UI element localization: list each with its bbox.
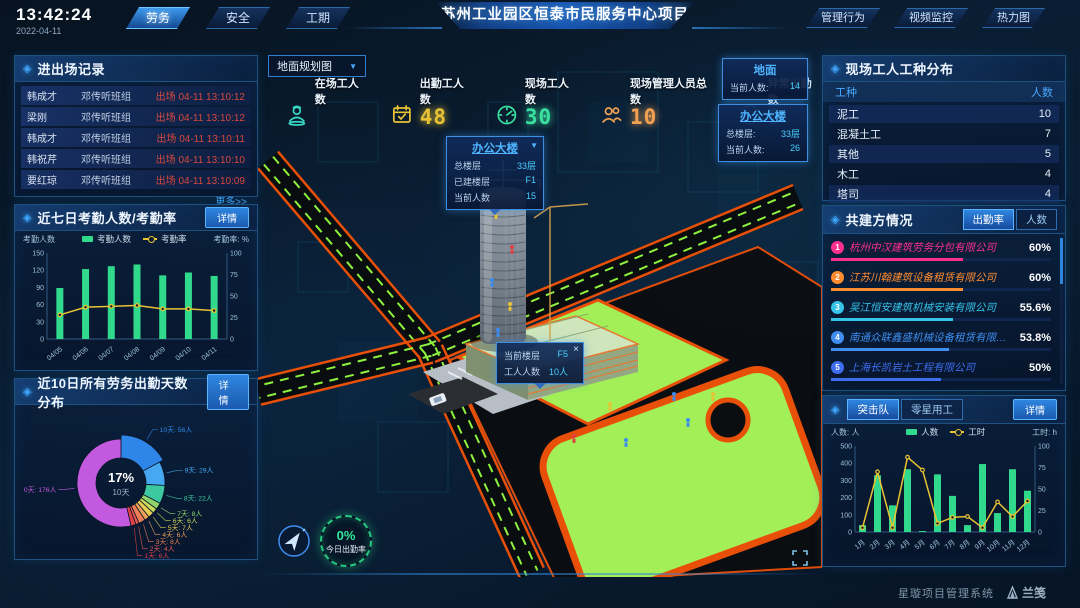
svg-text:400: 400: [840, 461, 852, 468]
svg-text:1天: 6人: 1天: 6人: [144, 552, 169, 559]
svg-text:1月: 1月: [853, 538, 867, 551]
partner-bar: [831, 258, 1051, 261]
svg-text:25: 25: [1038, 508, 1046, 515]
worker-name: 韩祝芹: [27, 151, 81, 166]
svg-text:100: 100: [230, 251, 242, 258]
svg-text:9天: 29人: 9天: 29人: [185, 467, 214, 475]
ground-panel-title: 地面: [730, 62, 800, 78]
legend-swatch: [950, 431, 964, 433]
svg-text:150: 150: [32, 251, 44, 258]
building-tooltip-rows: 总楼层33层已建楼层F1当前人数15: [454, 159, 536, 204]
svg-text:3月: 3月: [883, 538, 897, 551]
entry-exit-body: 韩成才邓传听班组出场 04-11 13:10:12梁刚邓传听班组出场 04-11…: [15, 82, 257, 189]
view-select-dropdown[interactable]: 地面规划图 ▼: [268, 55, 366, 77]
svg-text:17%: 17%: [108, 470, 134, 485]
attendance-panel: ◈ 近七日考勤人数/考勤率 详情 考勤人数 考勤人数考勤率 考勤率: % 030…: [14, 204, 258, 371]
fullscreen-icon[interactable]: [792, 550, 808, 566]
view-select-value: 地面规划图: [277, 58, 332, 74]
svg-text:4月: 4月: [898, 538, 912, 551]
partner-name: 杭州中汉建筑劳务分包有限公司: [849, 240, 1024, 255]
chevron-down-icon[interactable]: ▼: [530, 141, 538, 150]
nav-tab[interactable]: 视频监控: [894, 8, 968, 28]
worker-name: 韩成才: [27, 130, 81, 145]
svg-text:60: 60: [36, 302, 44, 309]
svg-text:200: 200: [840, 495, 852, 502]
svg-text:7天: 8人: 7天: 8人: [177, 510, 202, 518]
entry-exit-row: 韩祝芹邓传听班组出场 04-11 13:10:10: [21, 149, 251, 168]
svg-text:7月: 7月: [943, 538, 957, 551]
info-value: 26: [790, 143, 800, 156]
svg-text:90: 90: [36, 285, 44, 292]
legend-item: 人数: [906, 426, 938, 438]
current-time: 13:42:24: [16, 5, 92, 25]
partner-bar: [831, 288, 1051, 291]
exit-time: 出场 04-11 13:10:10: [156, 151, 245, 166]
exit-time: 出场 04-11 13:10:09: [156, 172, 245, 187]
svg-text:6天: 6人: 6天: 6人: [173, 517, 198, 525]
team-name: 邓传听班组: [81, 130, 156, 145]
attendance-axis-left-label: 考勤人数: [23, 234, 55, 245]
attendance-detail-button[interactable]: 详情: [205, 207, 249, 228]
stat-label: 现场管理人员总数: [630, 75, 717, 107]
assault-tab[interactable]: 零星用工: [901, 399, 963, 420]
worker-type: 其他: [837, 146, 859, 162]
scrollbar-thumb[interactable]: [1060, 238, 1063, 284]
partner-bar-fill: [831, 258, 963, 261]
worker-count: 10: [1039, 108, 1051, 120]
legend-swatch: [82, 236, 93, 242]
partner-row: 3吴江恒安建筑机械安装有限公司55.6%: [823, 300, 1065, 327]
partner-percent: 53.8%: [1020, 332, 1051, 344]
banner-wing-right: [692, 27, 788, 29]
svg-text:04/11: 04/11: [201, 346, 219, 362]
page-title: 苏州工业园区恒泰市民服务中心项目: [441, 7, 689, 23]
info-value: 10人: [549, 365, 568, 378]
assault-axis-right-label: 工时: h: [1032, 427, 1057, 438]
svg-text:2月: 2月: [868, 538, 882, 551]
exit-time: 出场 04-11 13:10:12: [156, 88, 245, 103]
info-label: 工人人数: [504, 365, 540, 378]
legend-swatch: [143, 238, 157, 240]
svg-text:10天: 56人: 10天: 56人: [160, 426, 193, 434]
worker-type: 木工: [837, 166, 859, 182]
svg-text:500: 500: [840, 444, 852, 451]
partners-title: 共建方情况: [845, 210, 913, 229]
legend-label: 工时: [968, 426, 985, 438]
today-attendance-gauge: 0% 今日出勤率: [320, 515, 372, 567]
worker-type-row: 塔司4: [829, 185, 1059, 203]
distribution-panel: ◈ 近10日所有劳务出勤天数分布 详情 10天: 56人9天: 29人8天: 2…: [14, 378, 258, 560]
stat-value: 10: [630, 107, 717, 128]
ground-panel-rows: 当前人数:14: [730, 81, 800, 94]
info-row: 工人人数10人: [504, 365, 568, 378]
partners-panel: ◈ 共建方情况 出勤率人数 1杭州中汉建筑劳务分包有限公司60%2江苏川翰建筑设…: [822, 205, 1066, 391]
dashboard-root: 13:42:24 2022-04-11 劳务安全工期 苏州工业园区恒泰市民服务中…: [0, 0, 1080, 608]
clock: 13:42:24 2022-04-11: [16, 5, 92, 36]
svg-text:0: 0: [40, 337, 44, 344]
calendar-icon: [389, 102, 415, 128]
svg-text:50: 50: [230, 294, 238, 301]
entry-exit-row: 韩成才邓传听班组出场 04-11 13:10:12: [21, 86, 251, 105]
building-tooltip[interactable]: 办公大楼 ▼ 总楼层33层已建楼层F1当前人数15: [446, 136, 544, 210]
legend-label: 考勤率: [161, 233, 187, 245]
stat-value: 48: [420, 107, 474, 128]
rank-badge: 5: [831, 361, 844, 374]
svg-text:120: 120: [32, 268, 44, 275]
nav-right: 管理行为视频监控热力图: [806, 8, 1045, 28]
stat-item: 现场工人数30: [494, 75, 579, 128]
banner-wing-left: [346, 27, 442, 29]
partner-row: 2江苏川翰建筑设备租赁有限公司60%: [823, 270, 1065, 297]
partners-tabs: 出勤率人数: [963, 209, 1058, 230]
svg-text:04/07: 04/07: [97, 346, 115, 362]
assault-detail-button[interactable]: 详情: [1013, 399, 1057, 420]
people-icon: [599, 102, 625, 128]
partners-scrollbar[interactable]: [1060, 238, 1063, 384]
legend-item: 考勤率: [143, 233, 187, 245]
exit-time: 出场 04-11 13:10:11: [156, 130, 245, 145]
svg-text:04/06: 04/06: [72, 346, 90, 362]
svg-text:5天: 7人: 5天: 7人: [168, 524, 193, 532]
partner-bar: [831, 318, 1051, 321]
info-value: 14: [790, 81, 800, 94]
ground-float-panel[interactable]: 地面 当前人数:14: [722, 58, 808, 100]
attendance-title: 近七日考勤人数/考勤率: [37, 208, 176, 227]
nav-tab[interactable]: 工期: [286, 7, 350, 29]
rank-badge: 1: [831, 241, 844, 254]
info-row: 总楼层33层: [454, 159, 536, 172]
info-label: 当前楼层: [504, 349, 540, 362]
stat-label: 在场工人数: [315, 75, 369, 107]
svg-text:8天: 22人: 8天: 22人: [184, 495, 213, 503]
stat-item: 现场管理人员总数10: [599, 75, 717, 128]
stat-value: [315, 107, 369, 128]
svg-text:75: 75: [1038, 465, 1046, 472]
partners-tab[interactable]: 人数: [1016, 209, 1057, 230]
legend-label: 人数: [921, 426, 938, 438]
worker-type-row: 混凝土工7: [829, 125, 1059, 143]
entry-exit-row: 韩成才邓传听班组出场 04-11 13:10:11: [21, 128, 251, 147]
svg-text:100: 100: [840, 512, 852, 519]
svg-text:100: 100: [1038, 444, 1050, 451]
stat-item: 在场工人数: [284, 75, 369, 128]
info-label: 总楼层:: [726, 127, 756, 140]
assault-tab[interactable]: 突击队: [847, 399, 899, 420]
partner-name: 江苏川翰建筑设备租赁有限公司: [849, 270, 1024, 285]
system-name: 星璇项目管理系统: [898, 585, 994, 601]
info-label: 当前人数:: [726, 143, 765, 156]
nav-left: 劳务安全工期: [126, 7, 350, 29]
info-row: 当前楼层F5: [504, 349, 568, 362]
attendance-axis-right-label: 考勤率: %: [213, 234, 249, 245]
nav-tab[interactable]: 热力图: [982, 8, 1045, 28]
entry-exit-header: ◈ 进出场记录: [15, 56, 257, 82]
partner-row: 4南通众联鑫盛机械设备租赁有限公司53.8%: [823, 330, 1065, 357]
worker-type: 混凝土工: [837, 126, 881, 142]
distribution-donut-chart: 10天: 56人9天: 29人8天: 22人7天: 8人6天: 6人5天: 7人…: [21, 407, 253, 559]
diamond-icon: ◈: [831, 213, 839, 226]
info-value: 33层: [517, 159, 536, 172]
distribution-detail-button[interactable]: 详情: [207, 374, 249, 410]
partner-row: 1杭州中汉建筑劳务分包有限公司60%: [823, 240, 1065, 267]
stat-label: 现场工人数: [525, 75, 579, 107]
partner-bar-fill: [831, 378, 941, 381]
partner-percent: 50%: [1029, 362, 1051, 374]
partner-percent: 55.6%: [1020, 302, 1051, 314]
diamond-icon: ◈: [831, 62, 839, 75]
worker-count: 5: [1045, 148, 1051, 160]
worker-type-row: 木工4: [829, 165, 1059, 183]
diamond-icon: ◈: [23, 211, 31, 224]
nav-tab[interactable]: 劳务: [126, 7, 190, 29]
partners-header: ◈ 共建方情况 出勤率人数: [823, 206, 1065, 234]
title-banner: 苏州工业园区恒泰市民服务中心项目: [436, 2, 694, 29]
svg-text:04/05: 04/05: [46, 346, 64, 362]
nav-tab[interactable]: 管理行为: [806, 8, 880, 28]
partner-bar-fill: [831, 348, 949, 351]
compass-icon[interactable]: [276, 523, 312, 559]
partner-name: 南通众联鑫盛机械设备租赁有限公司: [849, 330, 1015, 345]
site-scene[interactable]: 地面规划图 ▼ 在场工人数 出勤工人数48现场工人数30现场管理人员总数10异常…: [258, 42, 822, 577]
svg-text:5月: 5月: [913, 538, 927, 551]
svg-text:25: 25: [230, 315, 238, 322]
svg-text:300: 300: [840, 478, 852, 485]
col-count: 人数: [1031, 84, 1053, 100]
building-panel-title: 办公大楼: [726, 108, 800, 124]
assault-panel: ◈ 突击队零星用工 详情 人数: 人 人数工时 工时: h 0100200300…: [822, 395, 1066, 567]
scene-baseline: [258, 573, 822, 575]
footer: 星璇项目管理系统 兰笺: [898, 584, 1046, 601]
info-label: 当前人数:: [730, 81, 769, 94]
close-icon[interactable]: ×: [573, 344, 579, 355]
svg-text:10天: 10天: [113, 488, 130, 497]
svg-text:75: 75: [230, 272, 238, 279]
brand-logo: 兰笺: [1006, 584, 1046, 601]
assault-axis-left-label: 人数: 人: [831, 427, 859, 438]
brand-logo-text: 兰笺: [1022, 584, 1046, 601]
chevron-down-icon: ▼: [349, 62, 357, 71]
gauge-icon: [494, 102, 520, 128]
attendance-header: ◈ 近七日考勤人数/考勤率 详情: [15, 205, 257, 231]
diamond-icon: ◈: [831, 403, 839, 416]
worker-type-row: 其他5: [829, 145, 1059, 163]
building-panel-rows: 总楼层:33层当前人数:26: [726, 127, 800, 156]
info-label: 总楼层: [454, 159, 481, 172]
info-row: 总楼层:33层: [726, 127, 800, 140]
worker-type-row: 泥工10: [829, 105, 1059, 123]
worker-name: 韩成才: [27, 88, 81, 103]
info-value: 33层: [781, 127, 800, 140]
svg-text:2天: 4人: 2天: 4人: [150, 545, 175, 553]
info-value: F5: [557, 349, 568, 362]
worker-types-column-headers: 工种 人数: [823, 82, 1065, 102]
partner-row: 5上海长凯岩土工程有限公司50%: [823, 360, 1065, 387]
partner-percent: 60%: [1029, 242, 1051, 254]
worker-count: 7: [1045, 128, 1051, 140]
partner-bar: [831, 348, 1051, 351]
info-label: 当前人数: [454, 191, 490, 204]
worker-types-title: 现场工人工种分布: [845, 59, 953, 78]
info-value: 15: [526, 191, 536, 204]
partner-bar: [831, 378, 1051, 381]
stat-item: 出勤工人数48: [389, 75, 474, 128]
info-row: 已建楼层F1: [454, 175, 536, 188]
worker-name: 要红琼: [27, 172, 81, 187]
current-date: 2022-04-11: [16, 26, 92, 36]
stat-label: 出勤工人数: [420, 75, 474, 107]
info-row: 当前人数:14: [730, 81, 800, 94]
gauge-label: 今日出勤率: [326, 544, 366, 555]
svg-text:11月: 11月: [1001, 538, 1017, 553]
team-name: 邓传听班组: [81, 109, 156, 124]
svg-text:04/08: 04/08: [123, 346, 141, 362]
svg-text:50: 50: [1038, 487, 1046, 494]
svg-text:0天: 176人: 0天: 176人: [24, 486, 57, 494]
info-row: 当前人数:26: [726, 143, 800, 156]
partners-tab[interactable]: 出勤率: [963, 209, 1015, 230]
partner-percent: 60%: [1029, 272, 1051, 284]
svg-text:30: 30: [36, 319, 44, 326]
top-header: 13:42:24 2022-04-11 劳务安全工期 苏州工业园区恒泰市民服务中…: [0, 0, 1080, 42]
svg-text:0: 0: [848, 530, 852, 537]
legend-label: 考勤人数: [97, 233, 131, 245]
svg-text:04/10: 04/10: [175, 346, 193, 362]
stat-value: 30: [525, 107, 579, 128]
info-row: 当前人数15: [454, 191, 536, 204]
worker-types-header: ◈ 现场工人工种分布: [823, 56, 1065, 82]
entry-exit-panel: ◈ 进出场记录 韩成才邓传听班组出场 04-11 13:10:12梁刚邓传听班组…: [14, 55, 258, 197]
col-type: 工种: [835, 84, 857, 100]
nav-tab[interactable]: 安全: [206, 7, 270, 29]
worker-icon: [284, 102, 310, 128]
partner-name: 上海长凯岩土工程有限公司: [849, 360, 1024, 375]
info-label: 已建楼层: [454, 175, 490, 188]
floor-tooltip[interactable]: × 当前楼层F5工人人数10人: [496, 342, 584, 384]
svg-text:3天: 8人: 3天: 8人: [156, 538, 181, 546]
worker-type: 塔司: [837, 186, 859, 202]
svg-text:10月: 10月: [985, 538, 1002, 553]
brand-logo-icon: [1006, 586, 1019, 599]
worker-name: 梁刚: [27, 109, 81, 124]
svg-text:0: 0: [1038, 530, 1042, 537]
exit-time: 出场 04-11 13:10:12: [156, 109, 245, 124]
svg-text:12月: 12月: [1015, 538, 1032, 553]
worker-types-panel: ◈ 现场工人工种分布 工种 人数 泥工10混凝土工7其他5木工4塔司4: [822, 55, 1066, 201]
team-name: 邓传听班组: [81, 172, 156, 187]
assault-chart: 010020030040050002550751001月2月3月4月5月6月7月…: [829, 440, 1061, 560]
distribution-header: ◈ 近10日所有劳务出勤天数分布 详情: [15, 379, 257, 405]
legend-item: 考勤人数: [82, 233, 131, 245]
attendance-legend: 考勤人数考勤率: [82, 233, 187, 245]
entry-exit-row: 要红琼邓传听班组出场 04-11 13:10:09: [21, 170, 251, 189]
distribution-title: 近10日所有劳务出勤天数分布: [37, 373, 200, 411]
svg-text:9月: 9月: [973, 538, 987, 551]
rank-badge: 3: [831, 301, 844, 314]
svg-text:4天: 6人: 4天: 6人: [162, 531, 187, 539]
svg-text:6月: 6月: [928, 538, 942, 551]
legend-item: 工时: [950, 426, 985, 438]
partners-list: 1杭州中汉建筑劳务分包有限公司60%2江苏川翰建筑设备租赁有限公司60%3吴江恒…: [823, 234, 1065, 390]
assault-tabs: 突击队零星用工: [847, 399, 963, 420]
worker-type: 泥工: [837, 106, 859, 122]
info-value: F1: [525, 175, 536, 188]
rank-badge: 4: [831, 331, 844, 344]
partner-bar-fill: [831, 288, 963, 291]
svg-text:04/09: 04/09: [149, 346, 167, 362]
legend-swatch: [906, 429, 917, 435]
entry-exit-title: 进出场记录: [37, 59, 105, 78]
worker-count: 4: [1045, 188, 1051, 200]
worker-types-body: 泥工10混凝土工7其他5木工4塔司4: [823, 102, 1065, 203]
diamond-icon: ◈: [23, 385, 31, 398]
svg-text:0: 0: [230, 337, 234, 344]
team-name: 邓传听班组: [81, 151, 156, 166]
building-float-panel[interactable]: 办公大楼 总楼层:33层当前人数:26: [718, 104, 808, 162]
partner-name: 吴江恒安建筑机械安装有限公司: [849, 300, 1015, 315]
rank-badge: 2: [831, 271, 844, 284]
entry-exit-row: 梁刚邓传听班组出场 04-11 13:10:12: [21, 107, 251, 126]
team-name: 邓传听班组: [81, 88, 156, 103]
partner-bar-fill: [831, 318, 953, 321]
worker-count: 4: [1045, 168, 1051, 180]
diamond-icon: ◈: [23, 62, 31, 75]
assault-header: ◈ 突击队零星用工 详情: [823, 396, 1065, 424]
gauge-value: 0%: [337, 528, 356, 543]
building-tooltip-title: 办公大楼: [454, 140, 536, 156]
assault-legend: 人数工时: [906, 426, 985, 438]
svg-text:8月: 8月: [958, 538, 972, 551]
floor-tooltip-rows: 当前楼层F5工人人数10人: [504, 349, 576, 378]
attendance-chart: 0306090120150025507510004/0504/0604/0704…: [21, 247, 253, 367]
